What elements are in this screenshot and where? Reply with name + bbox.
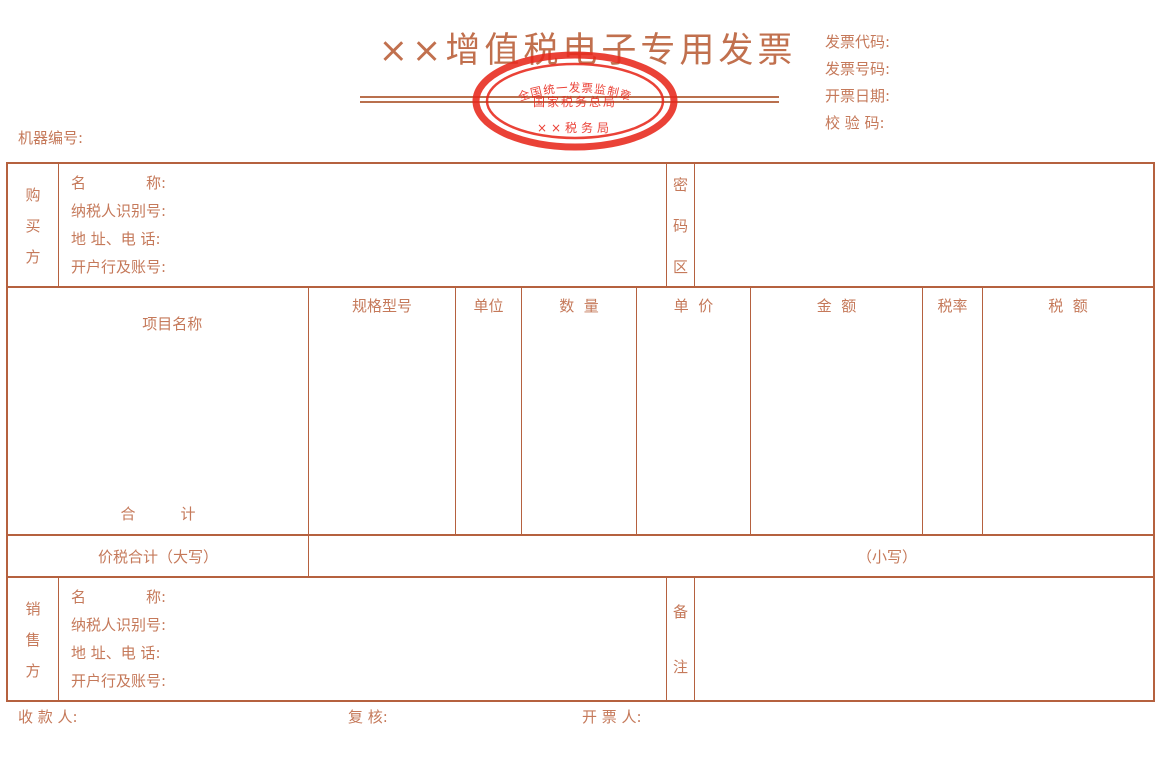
reviewer-label: 复 核: bbox=[348, 706, 388, 727]
column-item-name-label: 项目名称 bbox=[142, 315, 202, 333]
remarks-label-cell: 备注 bbox=[666, 578, 695, 700]
column-quantity: 数 量 bbox=[522, 288, 637, 534]
buyer-address-phone-label: 地 址、电 话: bbox=[71, 225, 666, 253]
invoice-date-label: 开票日期: bbox=[825, 83, 890, 110]
machine-number-label: 机器编号: bbox=[18, 127, 83, 148]
drawer-label: 开 票 人: bbox=[582, 706, 642, 727]
stamp-bottom-text: ××税务局 bbox=[537, 120, 613, 135]
column-unit: 单位 bbox=[456, 288, 522, 534]
password-area-label: 密码区 bbox=[670, 177, 691, 300]
seller-fields: 名 称: 纳税人识别号: 地 址、电 话: 开户行及账号: bbox=[58, 578, 666, 700]
password-area bbox=[695, 164, 1153, 286]
remarks-label: 备注 bbox=[670, 604, 691, 714]
total-line-label: 合 计 bbox=[8, 503, 308, 524]
column-tax-rate: 税率 bbox=[923, 288, 983, 534]
amount-in-figures-cell: （小写） bbox=[309, 536, 1153, 576]
items-table: 项目名称 合 计 规格型号 单位 数 量 单 价 金 额 税率 税 额 bbox=[6, 286, 1155, 536]
invoice-number-label: 发票号码: bbox=[825, 56, 890, 83]
amount-in-figures-label: （小写） bbox=[857, 546, 917, 567]
password-area-label-cell: 密码区 bbox=[666, 164, 695, 286]
seller-section: 销售方 名 称: 纳税人识别号: 地 址、电 话: 开户行及账号: 备注 bbox=[6, 576, 1155, 702]
check-code-label: 校 验 码: bbox=[825, 110, 890, 137]
buyer-fields: 名 称: 纳税人识别号: 地 址、电 话: 开户行及账号: bbox=[58, 164, 666, 286]
seller-bank-account-label: 开户行及账号: bbox=[71, 667, 666, 695]
column-amount: 金 额 bbox=[751, 288, 923, 534]
seller-taxpayer-id-label: 纳税人识别号: bbox=[71, 611, 666, 639]
tax-bureau-stamp-icon: 全国统一发票监制章 国家税务总局 ××税务局 bbox=[468, 48, 682, 154]
column-spec-model: 规格型号 bbox=[309, 288, 456, 534]
seller-name-label: 名 称: bbox=[71, 583, 666, 611]
buyer-bank-account-label: 开户行及账号: bbox=[71, 253, 666, 281]
invoice-sheet: 机器编号: ××增值税电子专用发票 发票代码: 发票号码: 开票日期: 校 验 … bbox=[0, 0, 1161, 759]
invoice-code-label: 发票代码: bbox=[825, 29, 890, 56]
buyer-side-label-cell: 购买方 bbox=[8, 164, 58, 286]
buyer-section: 购买方 名 称: 纳税人识别号: 地 址、电 话: 开户行及账号: 密码区 bbox=[6, 162, 1155, 288]
column-item-name: 项目名称 合 计 bbox=[8, 288, 309, 534]
seller-side-label: 销售方 bbox=[23, 601, 44, 694]
buyer-taxpayer-id-label: 纳税人识别号: bbox=[71, 197, 666, 225]
column-unit-price: 单 价 bbox=[637, 288, 751, 534]
amount-in-words-label: 价税合计（大写） bbox=[8, 536, 309, 576]
buyer-side-label: 购买方 bbox=[23, 187, 44, 280]
remarks-area bbox=[695, 578, 1153, 700]
invoice-meta-block: 发票代码: 发票号码: 开票日期: 校 验 码: bbox=[825, 29, 890, 137]
grand-total-row: 价税合计（大写） （小写） bbox=[6, 534, 1155, 578]
seller-address-phone-label: 地 址、电 话: bbox=[71, 639, 666, 667]
stamp-center-text: 国家税务总局 bbox=[533, 94, 617, 109]
seller-side-label-cell: 销售方 bbox=[8, 578, 58, 700]
buyer-name-label: 名 称: bbox=[71, 169, 666, 197]
column-tax-amount: 税 额 bbox=[983, 288, 1153, 534]
payee-label: 收 款 人: bbox=[18, 706, 78, 727]
